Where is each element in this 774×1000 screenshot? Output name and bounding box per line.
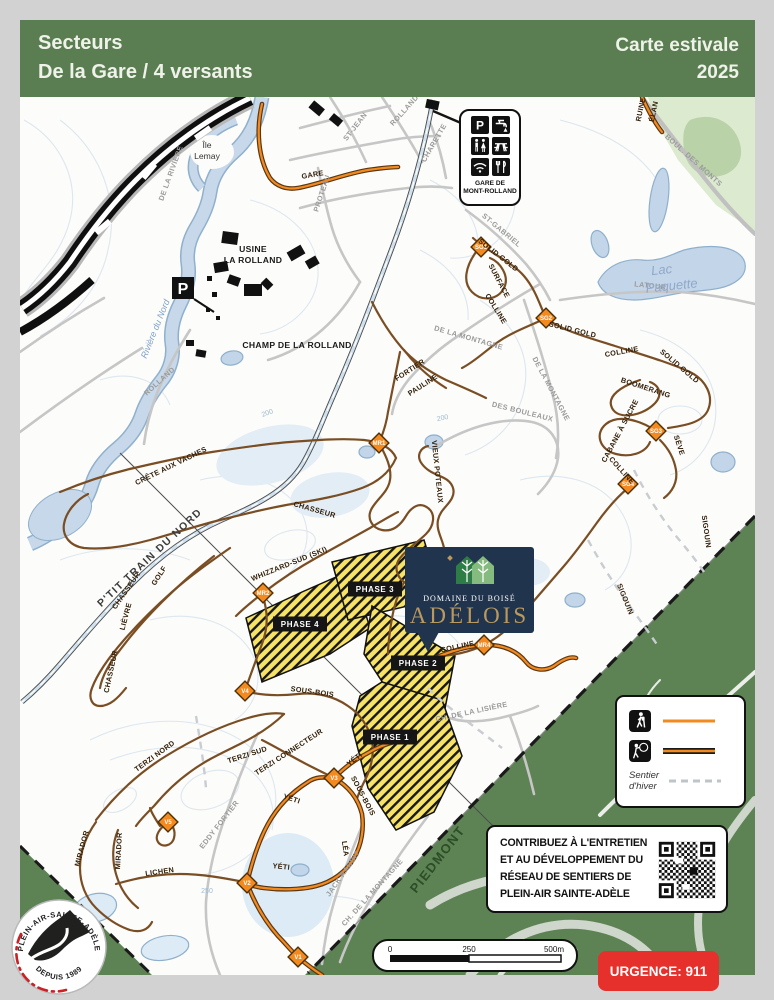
sector-title-line1: Secteurs xyxy=(38,29,253,58)
adelois-logo-box: DOMAINE DU BOISÉ ADÉLOIS xyxy=(405,547,534,633)
station-name: GARE DE MONT-ROLLAND xyxy=(461,180,519,196)
restaurant-icon xyxy=(492,158,510,176)
scale-tick-500: 500m xyxy=(544,945,564,954)
scale-tick-250: 250 xyxy=(462,945,476,954)
scale-tick-0: 0 xyxy=(388,945,393,954)
phase-3-badge: PHASE 3 xyxy=(356,585,394,594)
waypoint-mr4: MR4 xyxy=(478,643,491,649)
champ-label: CHAMP DE LA ROLLAND xyxy=(242,340,351,350)
parking-label: P xyxy=(178,281,189,298)
edition-title: Carte estivale 2025 xyxy=(615,32,739,86)
station-name-line2: MONT-ROLLAND xyxy=(461,188,519,196)
edition-line1: Carte estivale xyxy=(615,32,739,59)
winter-trail-label: Sentier d'hiver xyxy=(629,770,663,792)
contour-label: 250 xyxy=(201,888,213,895)
phase-2-badge: PHASE 2 xyxy=(399,659,437,668)
toilets-icon xyxy=(471,137,489,155)
winter-label-line1: Sentier xyxy=(629,770,663,781)
sector-title: Secteurs De la Gare / 4 versants xyxy=(38,29,253,87)
adelois-name-line2: ADÉLOIS xyxy=(405,603,534,629)
water-tap-icon xyxy=(492,116,510,134)
map-page: Secteurs De la Gare / 4 versants Carte e… xyxy=(0,0,774,1000)
emergency-badge: URGENCE: 911 xyxy=(598,951,719,991)
qr-code xyxy=(656,837,718,903)
contribute-line2: ET AU DÉVELOPPEMENT DU xyxy=(500,852,656,869)
waypoint-v5: V5 xyxy=(164,820,172,826)
header-banner: Secteurs De la Gare / 4 versants Carte e… xyxy=(20,20,755,97)
parking-icon: P xyxy=(471,116,489,134)
scale-bar: 0 250 500m xyxy=(372,939,578,972)
usine-label: LA ROLLAND xyxy=(224,255,283,265)
lake-label: Lac xyxy=(650,261,673,278)
legend-bike-row xyxy=(629,736,744,766)
waypoint-v3: V3 xyxy=(330,776,338,782)
winter-line-sample xyxy=(667,778,723,784)
legend-box: Sentier d'hiver xyxy=(615,695,746,808)
waypoint-sg3: SG3 xyxy=(650,429,663,435)
contribute-box: CONTRIBUEZ À L'ENTRETIEN ET AU DÉVELOPPE… xyxy=(486,825,728,913)
waypoint-mr2: MR2 xyxy=(257,591,270,597)
wifi-icon xyxy=(471,158,489,176)
station-amenities-box: P GARE DE MONT-ROLLAND xyxy=(459,109,521,206)
trail-label: YÉTI xyxy=(272,861,290,872)
phase-1-badge: PHASE 1 xyxy=(371,733,409,742)
emergency-label: URGENCE: 911 xyxy=(610,964,708,979)
contribute-line4: PLEIN-AIR SAINTE-ADÈLE xyxy=(500,886,656,903)
waypoint-v4: V4 xyxy=(241,689,249,695)
station-name-line1: GARE DE xyxy=(461,180,519,188)
winter-label-line2: d'hiver xyxy=(629,781,663,792)
waypoint-mr1: MR1 xyxy=(373,441,386,447)
island-label: Lemay xyxy=(194,151,220,161)
contribute-line3: RÉSEAU DE SENTIERS DE xyxy=(500,869,656,886)
island-label: Île xyxy=(201,140,211,150)
adelois-trees-icon xyxy=(442,554,498,586)
org-logo: PLEIN-AIR-SAINTE-ADÈLE DEPUIS 1989 xyxy=(10,898,108,996)
contribute-line1: CONTRIBUEZ À L'ENTRETIEN xyxy=(500,835,656,852)
waypoint-v1: V1 xyxy=(294,955,302,961)
usine-label: USINE xyxy=(239,244,267,254)
svg-text:P: P xyxy=(475,119,483,133)
legend-winter-row: Sentier d'hiver xyxy=(629,766,744,796)
phase-4-badge: PHASE 4 xyxy=(281,620,319,629)
adelois-pointer xyxy=(417,632,439,652)
multiuse-line-sample xyxy=(661,747,717,755)
legend-hiking-row xyxy=(629,706,744,736)
hiker-bike-icon xyxy=(629,740,651,762)
adelois-name-line1: DOMAINE DU BOISÉ xyxy=(405,594,534,603)
contribute-text: CONTRIBUEZ À L'ENTRETIEN ET AU DÉVELOPPE… xyxy=(500,835,656,911)
picnic-table-icon xyxy=(492,137,510,155)
hiker-icon xyxy=(629,710,651,732)
edition-line2: 2025 xyxy=(615,59,739,86)
hiking-line-sample xyxy=(661,718,717,724)
sector-title-line2: De la Gare / 4 versants xyxy=(38,58,253,87)
waypoint-v2: V2 xyxy=(243,881,251,887)
